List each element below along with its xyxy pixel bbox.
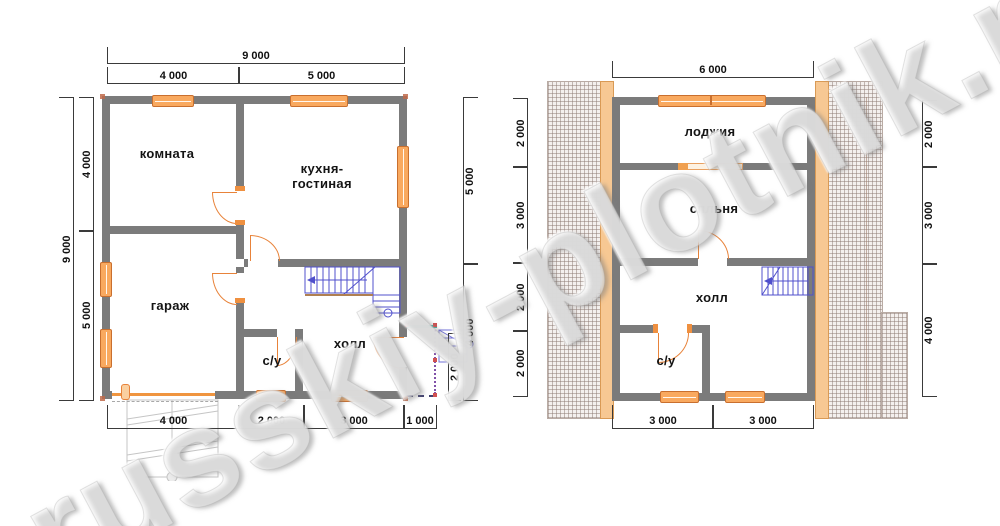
f2-window-bottom-1	[660, 391, 699, 403]
f2-window-top-divider	[710, 95, 712, 105]
f1-dim-left-upper: 4 000	[79, 97, 94, 232]
f2-wall-bedroom-a	[620, 258, 698, 266]
f2-label-wc: с/у	[641, 353, 691, 368]
f1-dim-right-lower: 4 000	[463, 263, 478, 401]
f1-label-hall: холл	[300, 336, 400, 351]
f1-dim-top-right: 5 000	[238, 67, 405, 84]
f1-label-kitchen: кухня- гостиная	[270, 161, 374, 191]
f1-wall-room-bottom	[102, 226, 244, 234]
f2-loggia-opening-tick	[678, 163, 688, 170]
f2-roof-hatch-right-lower	[881, 312, 908, 419]
f1-label-garage: гараж	[120, 298, 220, 313]
floor-plan-sheet: комната кухня- гостиная гараж с/у холл 9…	[0, 0, 1000, 526]
f1-dim-bottom-1: 4 000	[107, 405, 240, 429]
f1-wall-kitchen-bottom-stub	[244, 259, 248, 267]
f1-wall-room-kitchen	[236, 104, 244, 190]
f1-corner-marker-bl	[100, 396, 105, 401]
f1-dim-left-total: 9 000	[59, 97, 74, 401]
f2-dim-top-total: 6 000	[612, 61, 814, 78]
f1-wall-garage-right-a	[236, 234, 244, 259]
f1-grip-2	[433, 323, 437, 327]
f1-window-left-1	[100, 262, 112, 297]
f1-dim-bottom-2: 2 000	[238, 405, 305, 429]
f2-staircase	[760, 265, 815, 297]
f1-garage-dashed-line	[112, 401, 218, 402]
f1-window-left-2	[100, 329, 112, 368]
f1-dim-porch: 2 000	[448, 333, 461, 401]
f2-label-bedroom: спльня	[664, 201, 764, 216]
f1-door-room	[212, 192, 237, 224]
f2-wall-left	[612, 97, 620, 401]
f2-roof-edge-line	[866, 97, 867, 401]
f1-window-right	[397, 146, 409, 208]
f1-grip-1	[405, 323, 409, 327]
f1-grip-3	[433, 358, 437, 362]
f1-window-top-2	[290, 95, 348, 107]
f2-gable-strip-right	[815, 81, 829, 419]
f2-roof-hatch-left	[547, 81, 602, 419]
f1-dim-bottom-4: 1 000	[403, 405, 437, 429]
f2-dim-right-1: 2 000	[922, 100, 937, 168]
f2-window-top	[658, 95, 766, 107]
f1-jamb-room-top	[235, 186, 245, 191]
f1-porch-dashed-line	[407, 395, 435, 397]
f1-jamb-room-bottom	[235, 220, 245, 225]
f1-wall-wc-top	[244, 329, 277, 337]
f2-dim-left-2: 3 000	[513, 166, 528, 264]
f1-grip-4	[433, 393, 437, 397]
f1-wall-garage-right-b	[236, 267, 244, 273]
f2-label-loggia: лоджия	[660, 124, 760, 139]
f1-corner-marker-br	[403, 396, 408, 401]
f2-wall-right	[807, 97, 815, 401]
f2-roof-hatch-right	[827, 81, 883, 419]
f1-dim-top-total: 9 000	[107, 47, 405, 64]
f2-door-bedroom	[698, 230, 729, 259]
f2-dim-left-1: 2 000	[513, 98, 528, 168]
f1-wall-garage-right-c	[236, 303, 244, 391]
f1-wall-bottom	[215, 391, 407, 399]
f2-wall-loggia-a	[620, 163, 678, 170]
f1-window-top-1	[152, 95, 194, 107]
f2-wall-wc-right	[702, 325, 710, 393]
f1-dim-top-left: 4 000	[107, 67, 240, 84]
f1-garage-gate-leaf	[121, 384, 130, 400]
f2-wall-bottom	[612, 393, 815, 401]
f1-jamb-garage	[235, 298, 245, 303]
f2-dim-right-2: 3 000	[922, 166, 937, 265]
f1-dim-right-upper: 5 000	[463, 97, 478, 265]
f2-wall-loggia-b	[743, 163, 807, 170]
f2-dim-right-3: 4 000	[922, 263, 937, 397]
f2-label-hall: холл	[662, 290, 762, 305]
f1-dim-bottom-3: 3 000	[303, 405, 405, 429]
f2-dim-bottom-1: 3 000	[612, 405, 714, 429]
f1-corner-marker-tr	[403, 94, 408, 99]
f1-staircase	[303, 265, 402, 319]
f1-porch-dotted-line	[434, 330, 436, 394]
f1-label-room: комната	[117, 146, 217, 161]
f1-label-wc: с/у	[247, 353, 297, 368]
f2-window-bottom-2	[725, 391, 765, 403]
f1-door-kitchen	[250, 235, 280, 261]
f1-wall-top	[102, 96, 407, 104]
f2-jamb-wc-right	[687, 324, 692, 333]
f1-dim-left-lower: 5 000	[79, 230, 94, 401]
f2-dim-bottom-2: 3 000	[712, 405, 814, 429]
f2-dim-left-4: 2 000	[513, 330, 528, 397]
f1-corner-marker-tl	[100, 94, 105, 99]
f2-dim-left-3: 2 000	[513, 262, 528, 332]
f1-window-bottom-2	[331, 390, 368, 402]
f1-window-bottom-1	[256, 390, 286, 402]
f2-jamb-wc-left	[653, 324, 658, 333]
